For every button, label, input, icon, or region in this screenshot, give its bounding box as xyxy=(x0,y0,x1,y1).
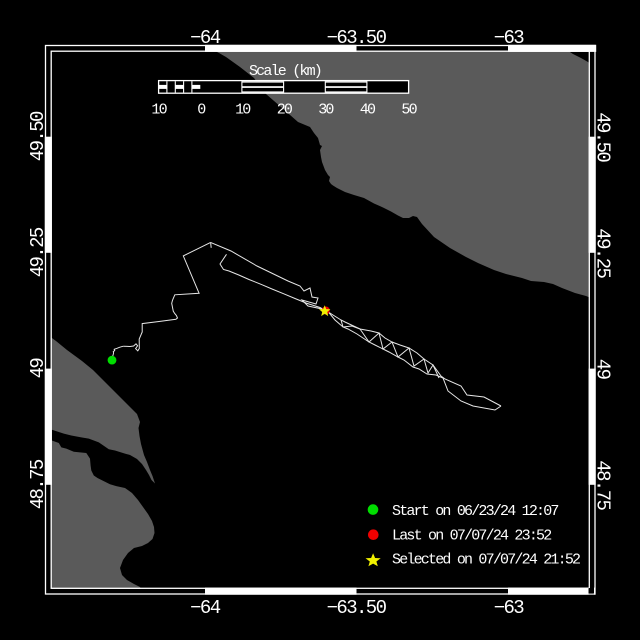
svg-text:20: 20 xyxy=(277,102,293,119)
svg-text:−64: −64 xyxy=(190,597,221,619)
svg-text:Selected on 07/07/24 21:52: Selected on 07/07/24 21:52 xyxy=(392,552,580,569)
svg-text:10: 10 xyxy=(151,102,167,119)
svg-text:49.50: 49.50 xyxy=(27,111,49,161)
svg-text:Start on 06/23/24 12:07: Start on 06/23/24 12:07 xyxy=(392,503,558,520)
svg-text:49: 49 xyxy=(592,359,614,380)
svg-text:49: 49 xyxy=(27,358,49,379)
svg-text:10: 10 xyxy=(235,102,251,119)
svg-text:−63: −63 xyxy=(494,27,525,49)
svg-text:49.25: 49.25 xyxy=(27,227,49,277)
svg-text:−64: −64 xyxy=(190,27,221,49)
svg-text:Last on 07/07/24 23:52: Last on 07/07/24 23:52 xyxy=(392,527,551,544)
svg-text:40: 40 xyxy=(360,102,376,119)
svg-text:49.50: 49.50 xyxy=(592,112,614,162)
svg-text:−63.50: −63.50 xyxy=(327,597,387,619)
svg-text:−63: −63 xyxy=(494,597,525,619)
svg-text:49.25: 49.25 xyxy=(592,228,614,278)
svg-text:Scale (km): Scale (km) xyxy=(249,63,321,80)
svg-text:−63.50: −63.50 xyxy=(327,27,387,49)
svg-text:30: 30 xyxy=(318,102,334,119)
svg-text:50: 50 xyxy=(401,102,417,119)
svg-text:48.75: 48.75 xyxy=(592,460,614,510)
svg-text:48.75: 48.75 xyxy=(27,459,49,509)
